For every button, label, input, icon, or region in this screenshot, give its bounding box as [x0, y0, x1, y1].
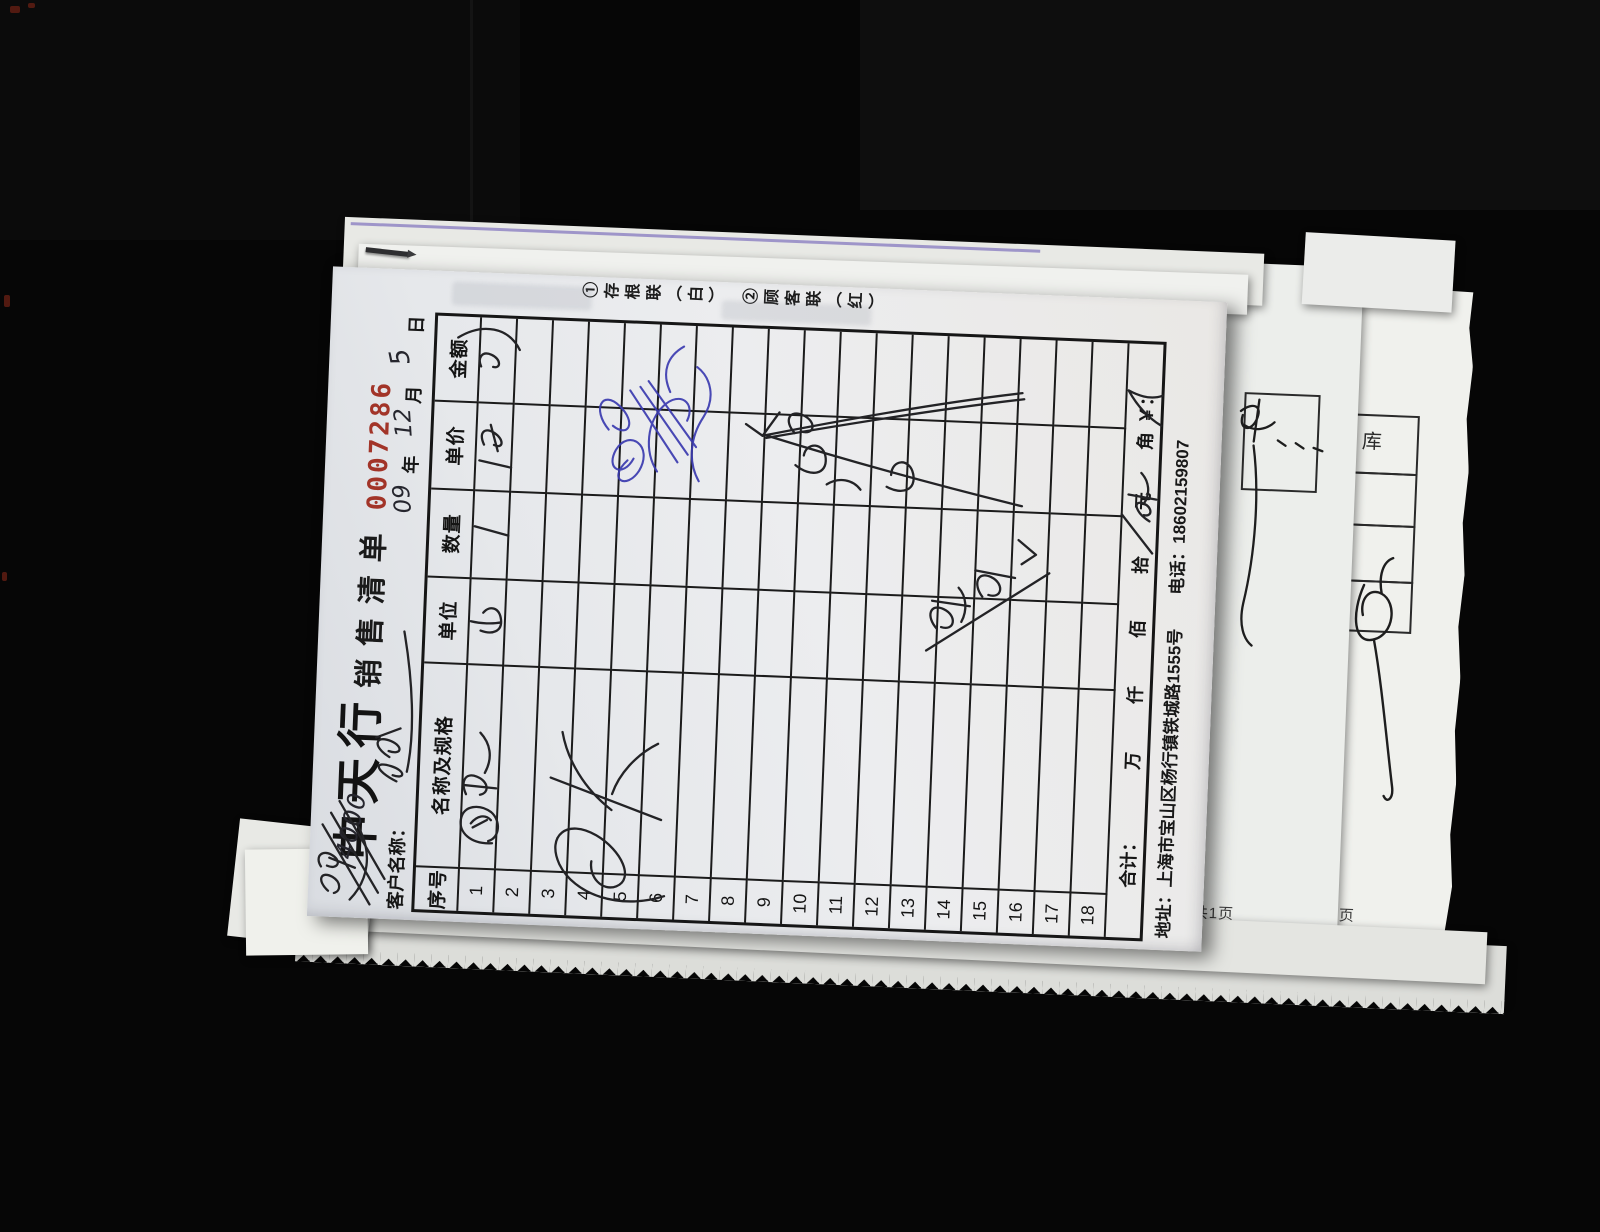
red-speck [4, 295, 10, 307]
sales-form-document: 中天行 销售清单 0007286 客户名称： 年 月 日 4000 09 12 … [307, 266, 1227, 951]
long-diagonal-strokes [760, 383, 1026, 506]
crossed-note-scribble [317, 853, 355, 894]
handwriting-ink-overlay [307, 266, 1227, 951]
page-char: 页 [1338, 904, 1355, 926]
paper-stack: 库 页 共1页 中天行 销售清单 0007286 客户 [0, 0, 1600, 1232]
red-speck [10, 6, 20, 13]
warehouse-char: 库 [1361, 425, 1382, 455]
total-row-scribble [1120, 472, 1157, 553]
sales-form: 中天行 销售清单 0007286 客户名称： 年 月 日 4000 09 12 … [307, 266, 1227, 951]
mid-table-scribble [930, 587, 971, 631]
customer-name-scribble [374, 728, 404, 782]
mid-table-slash [926, 569, 1049, 656]
large-signature-scribble [553, 828, 666, 903]
row1-price-scribble [479, 424, 513, 467]
row1-unit-scribble [470, 607, 501, 632]
blue-pen-scribble [597, 343, 712, 484]
row1-qty-mark [474, 526, 508, 535]
under-sheet-top-right-corner [1302, 232, 1456, 313]
row1-amount-scribble [457, 328, 520, 368]
row1-name-scribble [460, 806, 499, 843]
